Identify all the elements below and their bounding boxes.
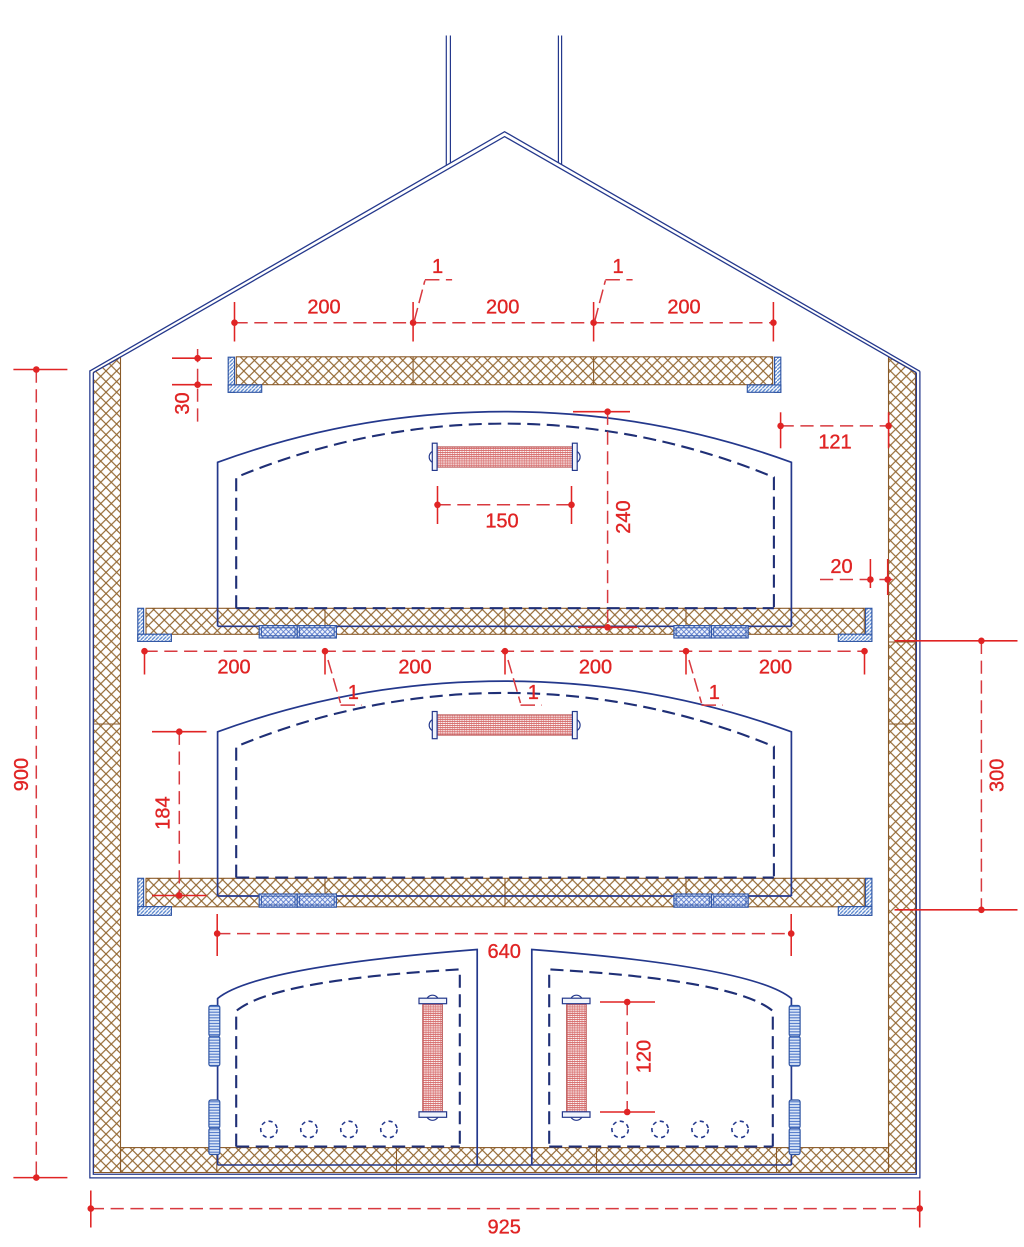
svg-text:1: 1: [432, 256, 443, 278]
svg-text:20: 20: [830, 556, 852, 578]
svg-text:900: 900: [11, 758, 33, 791]
svg-text:200: 200: [667, 297, 700, 319]
svg-text:200: 200: [217, 657, 250, 679]
svg-text:184: 184: [153, 796, 175, 829]
svg-text:240: 240: [613, 500, 635, 533]
svg-text:200: 200: [398, 657, 431, 679]
svg-text:200: 200: [579, 657, 612, 679]
svg-text:1: 1: [613, 256, 624, 278]
svg-text:925: 925: [488, 1217, 521, 1239]
svg-text:30: 30: [172, 392, 194, 414]
svg-text:200: 200: [307, 297, 340, 319]
svg-text:300: 300: [987, 759, 1009, 792]
svg-text:120: 120: [634, 1040, 656, 1073]
svg-text:200: 200: [759, 657, 792, 679]
svg-text:1: 1: [348, 682, 359, 704]
svg-text:640: 640: [488, 941, 521, 963]
svg-text:200: 200: [486, 297, 519, 319]
svg-text:1: 1: [709, 682, 720, 704]
svg-text:121: 121: [818, 431, 851, 453]
svg-text:1: 1: [528, 682, 539, 704]
svg-text:150: 150: [485, 511, 518, 533]
